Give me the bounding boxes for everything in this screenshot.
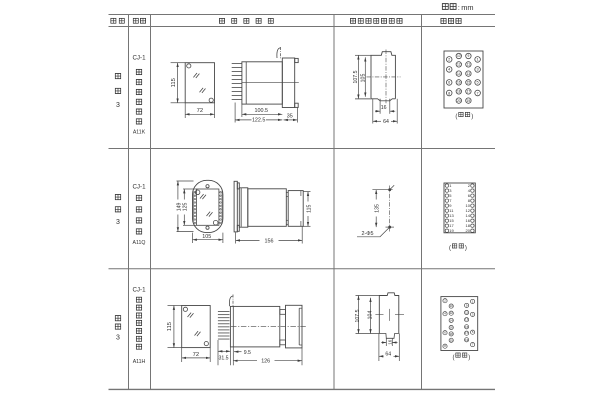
svg-text:9.5: 9.5 bbox=[244, 350, 251, 356]
svg-text:35: 35 bbox=[287, 113, 293, 119]
svg-text:(: ( bbox=[453, 355, 455, 361]
svg-text:A11H: A11H bbox=[133, 359, 146, 365]
svg-text:18: 18 bbox=[450, 332, 454, 336]
svg-text:105: 105 bbox=[361, 74, 367, 83]
svg-text:8: 8 bbox=[448, 91, 450, 95]
svg-text:2: 2 bbox=[448, 58, 450, 62]
svg-text:17: 17 bbox=[467, 90, 471, 94]
svg-text:64: 64 bbox=[385, 351, 391, 357]
svg-text:16: 16 bbox=[457, 81, 461, 85]
svg-text:11: 11 bbox=[467, 63, 471, 67]
svg-text:72: 72 bbox=[197, 108, 203, 114]
svg-text:mm: mm bbox=[461, 3, 473, 12]
svg-text:156: 156 bbox=[265, 238, 274, 244]
svg-text:100.5: 100.5 bbox=[255, 108, 269, 114]
svg-text:): ) bbox=[468, 355, 470, 361]
svg-text:): ) bbox=[465, 246, 467, 252]
svg-text:17: 17 bbox=[465, 331, 469, 335]
svg-text:20: 20 bbox=[450, 338, 454, 342]
svg-text:CJ-1: CJ-1 bbox=[132, 184, 146, 191]
svg-text:115: 115 bbox=[171, 78, 177, 87]
svg-text:16: 16 bbox=[381, 105, 387, 111]
svg-text:7: 7 bbox=[477, 91, 479, 95]
svg-text:107.5: 107.5 bbox=[355, 309, 361, 322]
svg-text:126: 126 bbox=[261, 359, 270, 365]
svg-text:11: 11 bbox=[465, 311, 468, 315]
svg-text:10: 10 bbox=[457, 54, 461, 58]
svg-text:3: 3 bbox=[477, 68, 479, 72]
svg-text:107.5: 107.5 bbox=[353, 70, 359, 83]
svg-text:15: 15 bbox=[465, 325, 469, 329]
svg-text:104: 104 bbox=[368, 311, 374, 320]
svg-text:9: 9 bbox=[467, 54, 469, 58]
svg-text:14: 14 bbox=[450, 318, 454, 322]
svg-text:15: 15 bbox=[467, 81, 471, 85]
svg-text:A11Q: A11Q bbox=[133, 240, 146, 246]
svg-text:1: 1 bbox=[477, 58, 479, 62]
svg-text:5: 5 bbox=[477, 81, 479, 85]
svg-text:64: 64 bbox=[383, 119, 389, 125]
svg-text:10: 10 bbox=[450, 304, 454, 308]
svg-text:19: 19 bbox=[449, 228, 454, 233]
svg-text:115: 115 bbox=[167, 322, 173, 331]
svg-text:14: 14 bbox=[457, 72, 461, 76]
svg-text:3: 3 bbox=[116, 334, 120, 341]
svg-text::: : bbox=[458, 5, 460, 12]
svg-text:A11K: A11K bbox=[133, 130, 146, 136]
svg-text:19: 19 bbox=[465, 338, 469, 342]
svg-text:2-Φ5: 2-Φ5 bbox=[361, 231, 373, 237]
svg-text:12: 12 bbox=[450, 311, 454, 315]
svg-text:105: 105 bbox=[202, 234, 211, 240]
svg-text:): ) bbox=[471, 114, 473, 120]
svg-text:3: 3 bbox=[116, 102, 120, 109]
svg-text:20: 20 bbox=[457, 99, 461, 103]
svg-text:122.5: 122.5 bbox=[252, 118, 266, 124]
svg-text:20: 20 bbox=[466, 228, 471, 233]
svg-text:13: 13 bbox=[467, 72, 471, 76]
svg-text:18: 18 bbox=[457, 90, 461, 94]
svg-text:19: 19 bbox=[467, 99, 471, 103]
svg-text:135: 135 bbox=[375, 204, 381, 213]
svg-text:4: 4 bbox=[448, 68, 450, 72]
svg-text:115: 115 bbox=[306, 204, 312, 212]
svg-text:13: 13 bbox=[465, 318, 469, 322]
svg-text:125: 125 bbox=[183, 202, 189, 211]
svg-text:6: 6 bbox=[448, 81, 450, 85]
svg-text:16: 16 bbox=[387, 339, 392, 344]
svg-text:72: 72 bbox=[193, 352, 199, 358]
svg-text:(: ( bbox=[455, 114, 457, 120]
svg-text:(: ( bbox=[449, 246, 451, 252]
svg-text:CJ-1: CJ-1 bbox=[132, 287, 146, 294]
svg-text:CJ-1: CJ-1 bbox=[132, 55, 146, 62]
svg-text:16: 16 bbox=[450, 326, 454, 330]
svg-text:12: 12 bbox=[457, 63, 461, 67]
svg-text:149: 149 bbox=[176, 202, 182, 211]
svg-text:31.5: 31.5 bbox=[218, 355, 228, 361]
svg-text:3: 3 bbox=[116, 219, 120, 226]
